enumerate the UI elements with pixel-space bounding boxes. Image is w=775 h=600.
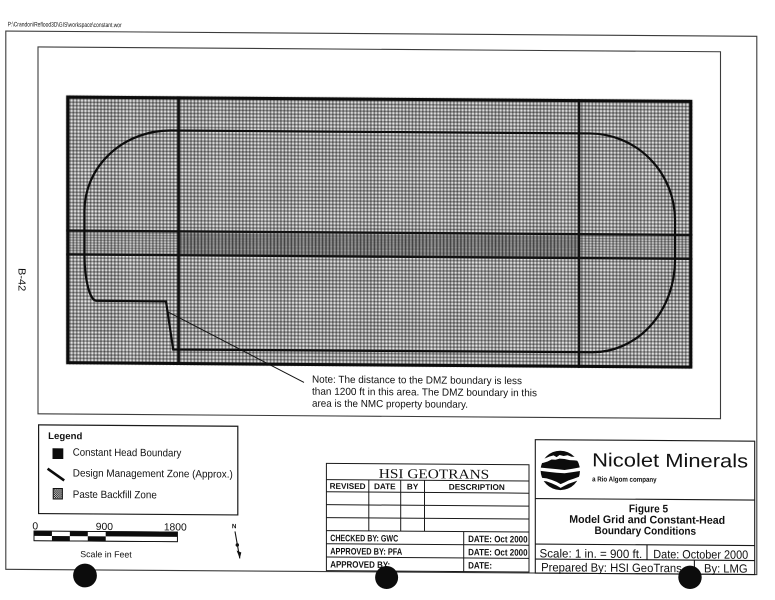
- svg-text:area is the NMC property bound: area is the NMC property boundary.: [312, 399, 468, 411]
- svg-text:Note: The distance to the DMZ: Note: The distance to the DMZ boundary i…: [312, 375, 522, 387]
- svg-text:900: 900: [96, 522, 113, 533]
- svg-text:B-42: B-42: [16, 268, 27, 292]
- svg-text:APPROVED BY: PFA: APPROVED BY: PFA: [330, 546, 402, 557]
- svg-text:Date: October 2000: Date: October 2000: [653, 547, 748, 562]
- svg-text:Constant Head Boundary: Constant Head Boundary: [73, 447, 182, 460]
- svg-text:a Rio Algom company: a Rio Algom company: [592, 474, 657, 483]
- svg-text:By: LMG: By: LMG: [704, 561, 748, 575]
- svg-text:DATE: Oct 2000: DATE: Oct 2000: [468, 547, 527, 557]
- svg-text:Legend: Legend: [48, 431, 82, 442]
- svg-text:N: N: [232, 523, 237, 530]
- svg-text:DATE: DATE: [374, 482, 396, 491]
- svg-text:Scale: 1 in. = 900 ft.: Scale: 1 in. = 900 ft.: [540, 546, 643, 561]
- svg-text:Nicolet Minerals: Nicolet Minerals: [592, 450, 748, 472]
- svg-text:HSI GEOTRANS: HSI GEOTRANS: [379, 466, 489, 482]
- svg-text:Design Management Zone (Approx: Design Management Zone (Approx.): [73, 468, 233, 481]
- svg-text:Paste Backfill Zone: Paste Backfill Zone: [73, 489, 157, 502]
- svg-text:Boundary Conditions: Boundary Conditions: [595, 525, 697, 538]
- svg-text:DATE:: DATE:: [468, 560, 492, 570]
- svg-text:P:\Crandon\Reflood3D\GIS\works: P:\Crandon\Reflood3D\GIS\workspace\const…: [8, 21, 123, 29]
- svg-text:than 1200 ft in this area. Th: than 1200 ft in this area. The DMZ bound…: [312, 387, 537, 400]
- svg-text:BY: BY: [407, 482, 419, 491]
- svg-text:Scale in Feet: Scale in Feet: [80, 549, 132, 559]
- svg-text:DESCRIPTION: DESCRIPTION: [449, 483, 505, 492]
- svg-text:Prepared By: HSI GeoTrans: Prepared By: HSI GeoTrans: [541, 560, 682, 575]
- svg-text:DATE: Oct 2000: DATE: Oct 2000: [468, 534, 527, 544]
- svg-text:0: 0: [32, 521, 38, 532]
- svg-text:CHECKED BY: GWC: CHECKED BY: GWC: [330, 533, 398, 543]
- svg-text:1800: 1800: [164, 522, 187, 533]
- svg-text:REVISED: REVISED: [330, 482, 366, 491]
